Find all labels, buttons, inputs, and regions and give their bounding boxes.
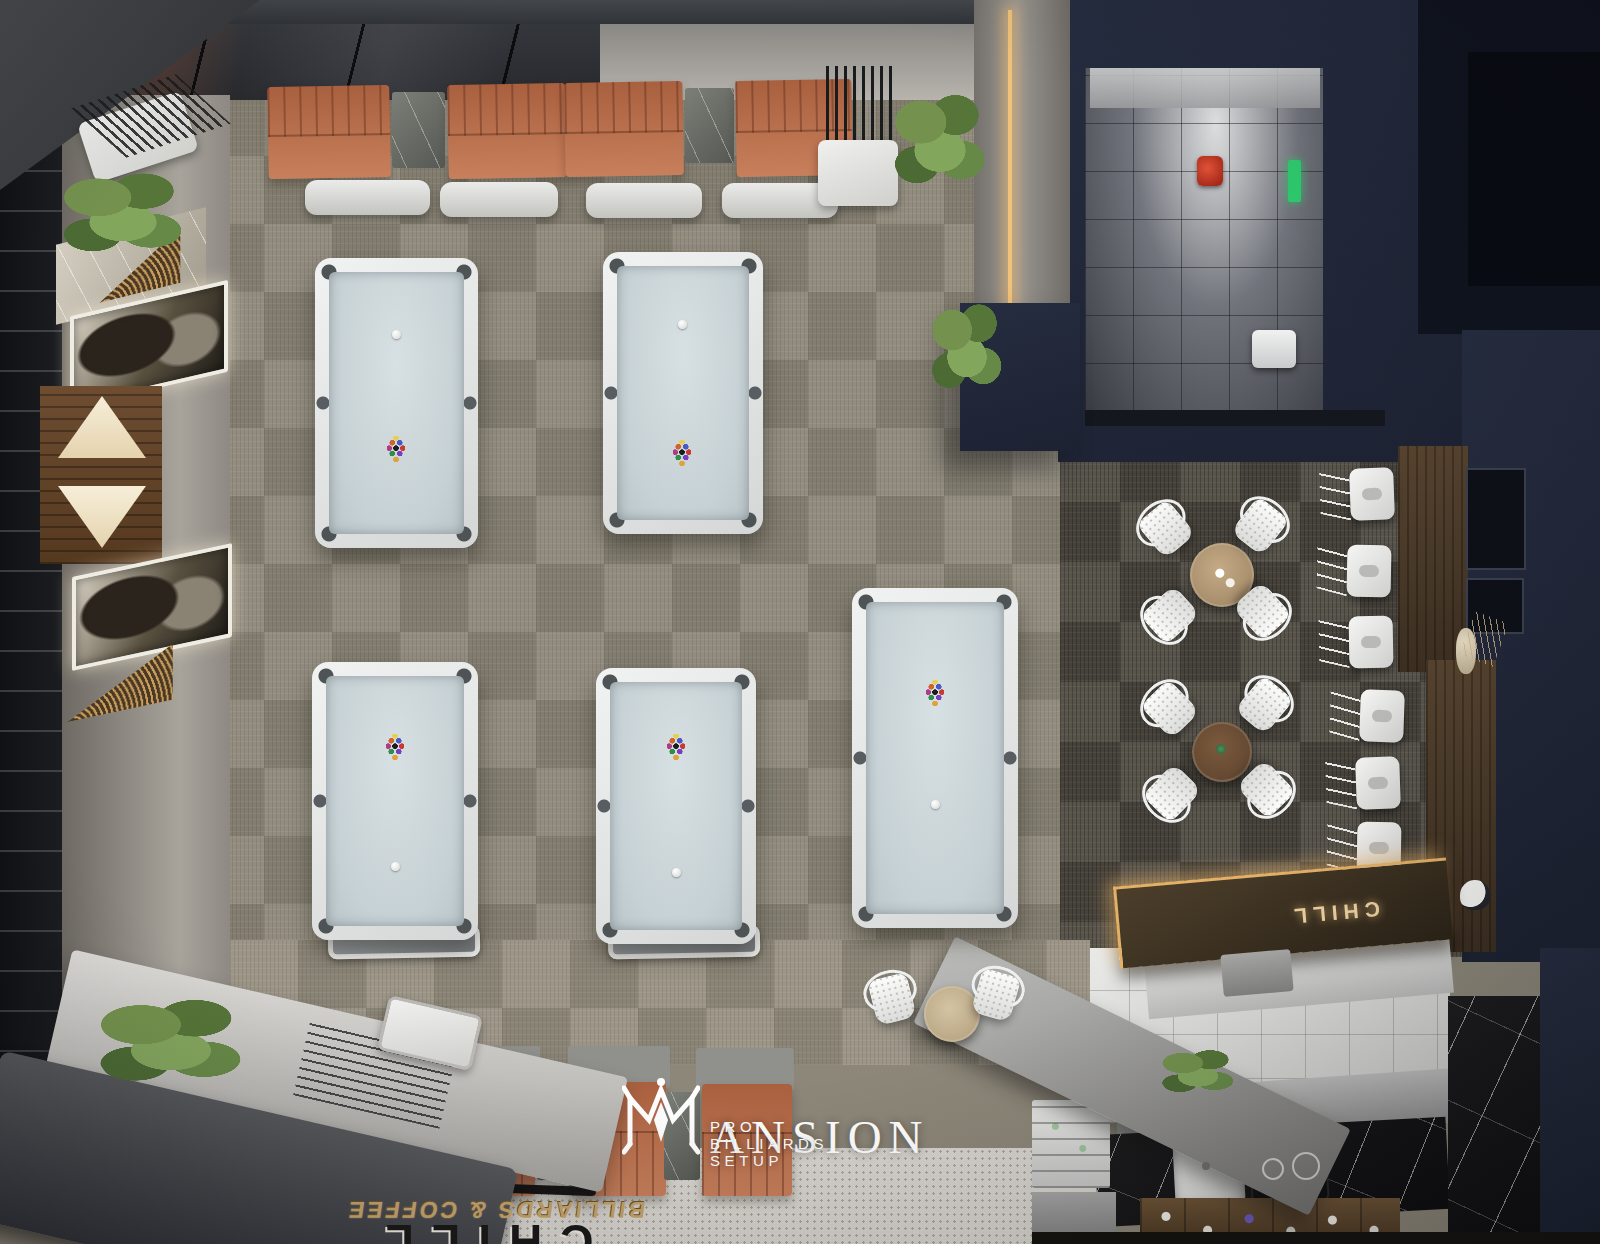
cue-ball xyxy=(931,800,940,809)
booth-side-table xyxy=(392,92,445,168)
bar-stool xyxy=(1349,616,1394,669)
cooktop-burner xyxy=(1292,1152,1320,1180)
palm-plant xyxy=(930,292,1004,404)
palm-plant xyxy=(892,82,988,200)
partition-wall xyxy=(974,0,1070,318)
booth-seat xyxy=(564,81,684,177)
black-marble-wall-panel xyxy=(1448,996,1546,1244)
bar-stool xyxy=(1347,545,1392,598)
fire-extinguisher xyxy=(1197,156,1223,186)
left-window-strip xyxy=(0,90,62,1140)
cue-ball xyxy=(672,868,681,877)
rabbit-figurine xyxy=(1460,880,1490,910)
pool-table-felt xyxy=(866,602,1004,914)
side-round-table xyxy=(924,986,980,1042)
pool-table xyxy=(596,668,756,944)
ottoman xyxy=(440,182,558,217)
racked-balls xyxy=(926,680,944,707)
racked-balls xyxy=(386,734,404,761)
pool-table xyxy=(315,258,478,548)
racked-balls xyxy=(387,436,405,463)
racked-balls xyxy=(673,440,691,467)
bar-stool xyxy=(1359,689,1405,743)
bottom-right-navy-wall xyxy=(1540,948,1600,1244)
sink-drain xyxy=(1202,1162,1210,1170)
pool-table xyxy=(312,662,478,940)
coffee-cups xyxy=(1212,566,1238,590)
partition-led-strip xyxy=(1008,10,1012,310)
bar-front-dark-base xyxy=(1032,1232,1600,1244)
ottoman xyxy=(586,183,702,218)
cooktop-burner xyxy=(1262,1158,1284,1180)
booth-seat xyxy=(267,85,391,179)
pool-table-felt xyxy=(326,676,464,926)
pool-table-felt xyxy=(610,682,742,930)
billiards-lounge-render: CHILL xyxy=(0,0,1600,1244)
pool-table xyxy=(852,588,1018,928)
mansion-logo-mark-icon xyxy=(622,1068,700,1160)
booth-seat xyxy=(447,83,567,179)
cue-ball xyxy=(391,862,400,871)
cue-ball xyxy=(678,320,687,329)
counter-appliance xyxy=(1220,949,1293,997)
exit-sign xyxy=(1288,160,1301,202)
mansion-watermark: ANSION PRO BILLIARDS SETUP xyxy=(622,1058,962,1170)
entry-ceiling-strip xyxy=(1090,68,1320,108)
bar-stool xyxy=(1349,467,1395,521)
booth-side-table xyxy=(685,88,734,163)
floor-decal-chill: CHILL xyxy=(368,1214,593,1244)
pool-table-felt xyxy=(329,272,464,534)
palm-plant xyxy=(96,988,246,1096)
logo-tagline: PRO BILLIARDS SETUP xyxy=(710,1118,828,1169)
entry-threshold xyxy=(1085,410,1385,426)
bottle-on-table xyxy=(1216,744,1226,754)
racked-balls xyxy=(667,734,685,761)
pool-table-felt xyxy=(617,266,749,520)
ottoman xyxy=(305,180,430,215)
cue-stand-base xyxy=(818,140,898,206)
dark-void xyxy=(1468,52,1600,286)
display-cabinet xyxy=(1466,468,1526,570)
cue-stand-cues xyxy=(826,66,892,148)
kitchen-plant xyxy=(1160,1044,1236,1100)
chill-counter-sign: CHILL xyxy=(1287,897,1381,929)
palm-plant xyxy=(60,162,186,266)
wall-ac-unit xyxy=(1252,330,1296,368)
bar-stool xyxy=(1355,756,1401,810)
cue-ball xyxy=(392,330,401,339)
pool-table xyxy=(603,252,763,534)
